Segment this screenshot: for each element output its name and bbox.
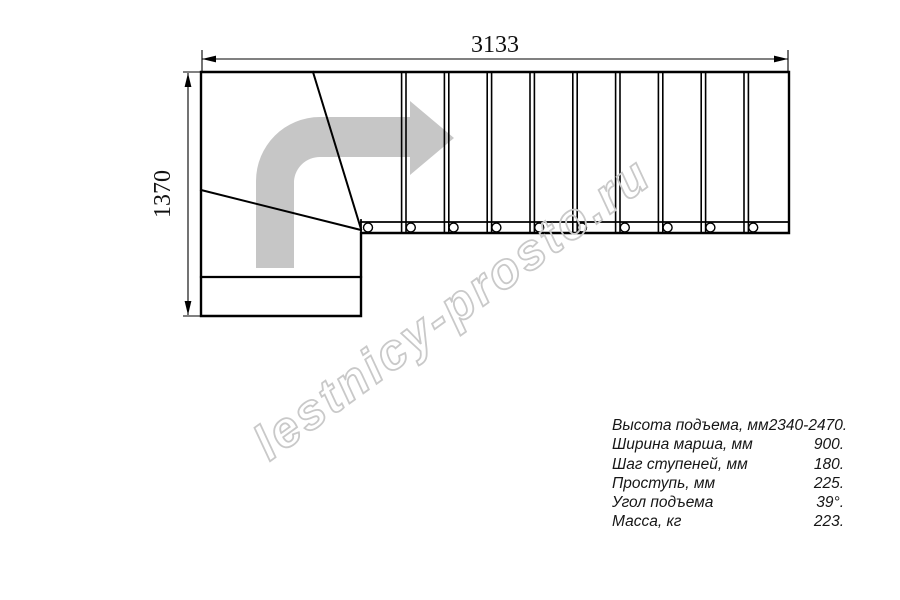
- spec-label: Высота подъема, мм: [612, 416, 769, 435]
- baluster-circle: [663, 223, 672, 232]
- spec-value: 900.: [814, 435, 844, 454]
- spec-label: Проступь, мм: [612, 474, 715, 493]
- baluster-circle: [406, 223, 415, 232]
- top-dimension: 3133: [202, 32, 788, 71]
- baluster-circle: [535, 223, 544, 232]
- spec-label: Угол подъема: [612, 493, 713, 512]
- spec-table: Высота подъема, мм2340-2470.Ширина марша…: [612, 416, 844, 532]
- baluster-circle: [578, 223, 587, 232]
- spec-label: Масса, кг: [612, 512, 681, 531]
- spec-row: Высота подъема, мм2340-2470.: [612, 416, 844, 435]
- spec-row: Ширина марша, мм900.: [612, 435, 844, 454]
- direction-arrow-icon: [256, 101, 454, 268]
- spec-row: Проступь, мм225.: [612, 474, 844, 493]
- top-dimension-label: 3133: [471, 32, 519, 58]
- spec-label: Шаг ступеней, мм: [612, 455, 748, 474]
- spec-row: Шаг ступеней, мм180.: [612, 455, 844, 474]
- left-dimension-label: 1370: [150, 170, 176, 218]
- baluster-circle: [749, 223, 758, 232]
- spec-value: 39°.: [816, 493, 844, 512]
- spec-value: 2340-2470.: [769, 416, 847, 435]
- step-dividers: [402, 72, 749, 233]
- dimension-arrowhead-right: [774, 56, 788, 63]
- dimension-arrowhead-top: [185, 73, 192, 87]
- baluster-circle: [449, 223, 458, 232]
- baluster-circle: [492, 223, 501, 232]
- baluster-circle: [706, 223, 715, 232]
- staircase-drawing-page: 3133 1370 lestnicy-prosto.ru Высота подъ…: [0, 0, 900, 600]
- spec-value: 225.: [814, 474, 844, 493]
- left-dimension: 1370: [150, 72, 201, 316]
- baluster-circle: [620, 223, 629, 232]
- spec-value: 223.: [814, 512, 844, 531]
- dimension-arrowhead-bottom: [185, 301, 192, 315]
- baluster-circle: [364, 223, 373, 232]
- spec-row: Масса, кг223.: [612, 512, 844, 531]
- spec-label: Ширина марша, мм: [612, 435, 753, 454]
- baluster-circles: [364, 223, 758, 232]
- spec-value: 180.: [814, 455, 844, 474]
- dimension-arrowhead-left: [202, 56, 216, 63]
- spec-row: Угол подъема39°.: [612, 493, 844, 512]
